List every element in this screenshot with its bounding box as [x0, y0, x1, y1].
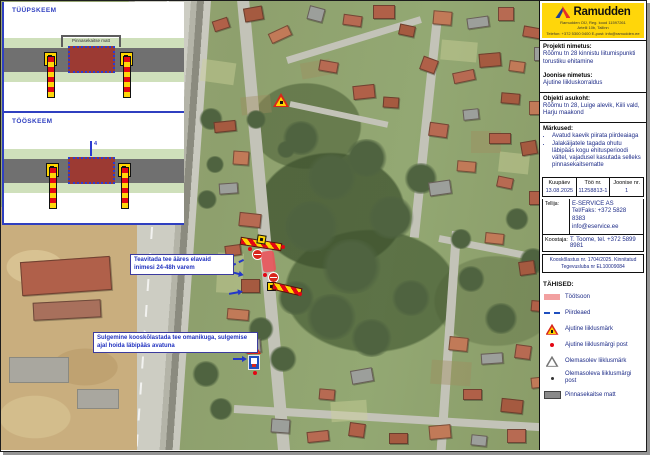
- work-zone-area: [261, 250, 277, 273]
- typical-scheme-panel: TÜÜPSKEEM Pinnasekaitse matt TÖÖSKEEM: [2, 2, 184, 225]
- map-tree: [344, 139, 389, 177]
- construction-slab: [77, 389, 119, 409]
- map-note-inform-residents: Teavitada tee ääres elavaid inimesi 24-4…: [130, 254, 234, 275]
- map-house: [466, 16, 489, 30]
- map-house: [389, 433, 408, 444]
- scheme-title: TÖÖSKEEM: [12, 118, 52, 125]
- map-house: [496, 175, 514, 189]
- map-tree: [390, 280, 432, 316]
- map-field: [200, 59, 237, 86]
- trench-work-zone: [68, 157, 115, 184]
- map-house: [398, 23, 416, 37]
- map-house: [428, 424, 451, 440]
- legend-item-existing-post: Olemasoleva liiklusmärgi post: [543, 371, 643, 385]
- map-house: [241, 279, 260, 293]
- scheme-title: TÜÜPSKEEM: [12, 7, 56, 14]
- dimension-label: 4: [94, 141, 97, 147]
- plan-sheet: Teavitada tee ääres elavaid inimesi 24-4…: [0, 0, 647, 452]
- drawing-label: Joonise nimetus:: [543, 73, 643, 79]
- approval-line: Tegevusluba nr EL10009084: [545, 264, 641, 271]
- excavator-glyph: [280, 101, 283, 104]
- company-logo-box: Ramudden Ramudden OÜ, Reg. kood 11597261…: [542, 3, 644, 38]
- client-line: info@eservice.ee: [572, 224, 641, 232]
- map-house: [428, 122, 449, 139]
- map-tree: [319, 239, 384, 294]
- map-field: [430, 360, 472, 387]
- temporary-sign-post: [248, 247, 252, 251]
- drawing-value: Ajutine liikluskorraldus: [543, 80, 643, 88]
- striped-sign-post: [49, 167, 57, 209]
- title-block: Ramudden Ramudden OÜ, Reg. kood 11597261…: [539, 1, 646, 450]
- project-value: Rõõmu tn 28 kinnistu liitumispunkti toru…: [543, 51, 643, 66]
- client-line: E-SERVICE AS: [572, 201, 641, 209]
- location-label: Objekti asukoht:: [543, 96, 643, 102]
- map-field: [330, 400, 367, 422]
- striped-sign-post: [123, 56, 131, 98]
- project-section: Projekti nimetus: Rõõmu tn 28 kinnistu l…: [540, 40, 646, 70]
- map-house: [462, 108, 479, 121]
- construction-area: [1, 207, 137, 450]
- map-house: [268, 25, 293, 44]
- map-house: [238, 212, 261, 228]
- construction-building: [20, 256, 112, 296]
- note-item: Avatud kaevik piirata piirdeaiaga: [552, 133, 643, 140]
- approval-section: Kooskõlastus nr. 1704/2025. Kinnitatud T…: [542, 254, 644, 274]
- map-tree: [349, 319, 394, 357]
- cross-section: 4: [4, 141, 184, 219]
- mat-swatch: [544, 391, 561, 399]
- map-tree: [504, 208, 530, 230]
- map-house: [212, 17, 231, 32]
- approval-line: Kooskõlastus nr. 1704/2025. Kinnitatud: [545, 257, 641, 264]
- author-value: T. Toome, tel. +372 5899 8981: [570, 237, 641, 249]
- map-house: [348, 422, 366, 438]
- company-address-line: Telefon: +372 5300 0400 E-post: info@ram…: [544, 31, 642, 36]
- meta-col-drawingnr: Joonise nr. 1: [610, 178, 643, 196]
- temp-sign-icon: [546, 324, 559, 335]
- map-house: [522, 25, 540, 39]
- map-house: [271, 418, 291, 433]
- map-note-closure-coordination: Sulgemine kooskõlastada tee omanikuga, s…: [93, 332, 258, 353]
- map-tree: [276, 141, 296, 158]
- scheme-work: TÖÖSKEEM 4: [4, 113, 184, 222]
- map-house: [306, 5, 325, 23]
- legend-item-temp-sign: Ajutine liiklusmärk: [543, 323, 643, 335]
- temporary-roadworks-sign: [273, 93, 289, 107]
- map-house: [489, 133, 511, 144]
- legend-item-temp-post: Ajutine liiklusmärgi post: [543, 339, 643, 351]
- map-house: [342, 14, 362, 28]
- client-section: Tellija: E-SERVICE AS Tel/Faks: +372 582…: [542, 199, 644, 235]
- meta-col-date: Kuupäev 13.08.2025: [543, 178, 577, 196]
- map-house: [319, 388, 336, 400]
- notes-label: Märkused:: [543, 126, 643, 132]
- map-house: [518, 260, 536, 276]
- temporary-sign-post: [298, 292, 302, 296]
- location-section: Objekti asukoht: Rõõmu tn 28, Luige alev…: [540, 92, 646, 122]
- striped-sign-post: [121, 167, 129, 209]
- map-house: [470, 434, 487, 447]
- map-house: [213, 120, 236, 133]
- map-tree: [483, 303, 519, 334]
- dimension-line: [90, 141, 92, 156]
- map-house: [457, 160, 477, 173]
- map-tree: [245, 110, 267, 129]
- information-sign: [248, 355, 260, 370]
- legend-item-fence: Piirdeaed: [543, 307, 643, 319]
- map-house: [500, 398, 523, 414]
- map-tree: [366, 196, 416, 239]
- map-house: [508, 60, 525, 73]
- temporary-sign-post: [263, 273, 267, 277]
- map-house: [481, 352, 504, 365]
- client-label: Tellija:: [543, 199, 570, 234]
- map-house: [452, 69, 476, 84]
- existing-sign-icon: [546, 356, 559, 367]
- author-section: Koostaja: T. Toome, tel. +372 5899 8981: [542, 235, 644, 252]
- map-house: [383, 96, 400, 108]
- meta-col-worknr: Töö nr. 11258813-1: [577, 178, 611, 196]
- author-label: Koostaja:: [545, 237, 568, 249]
- legend-item-mat: Pinnasekaitse matt: [543, 389, 643, 401]
- cross-section: Pinnasekaitse matt: [4, 30, 184, 108]
- construction-slab: [9, 357, 69, 383]
- map-house: [448, 336, 468, 352]
- map-house: [432, 10, 452, 26]
- map-house: [306, 430, 329, 443]
- map-house: [514, 344, 532, 360]
- trench-work-zone: [68, 46, 115, 73]
- map-house: [498, 7, 514, 21]
- temporary-sign-post: [253, 371, 257, 375]
- client-line: Tel/Faks: +372 5828 8383: [572, 208, 641, 224]
- map-tree: [191, 361, 221, 387]
- scheme-typical: TÜÜPSKEEM Pinnasekaitse matt: [4, 2, 184, 111]
- map-tree: [456, 266, 486, 292]
- note-item: Jalakäijatele tagada ohutu läbipääs kogu…: [552, 141, 643, 170]
- map-house: [373, 5, 395, 19]
- legend-item-existing-sign: Olemasolev liiklusmärk: [543, 355, 643, 367]
- map-house: [352, 84, 375, 100]
- legend-title: TÄHISED:: [543, 281, 643, 288]
- map-house: [463, 389, 482, 400]
- location-value: Rõõmu tn 28, Luige alevik, Kiili vald, H…: [543, 103, 643, 118]
- map-house: [520, 140, 538, 157]
- map-house: [243, 5, 264, 22]
- ramudden-logo-icon: [555, 6, 570, 18]
- project-label: Projekti nimetus:: [543, 44, 643, 50]
- existing-post-icon: [551, 377, 554, 380]
- map-house: [507, 429, 526, 443]
- map-tree: [196, 190, 218, 209]
- construction-building: [33, 299, 102, 321]
- legend: TÄHISED: Töötsoon Piirdeaed Ajutine liik…: [540, 275, 646, 401]
- existing-sign-marker: [229, 291, 239, 295]
- map-house: [350, 367, 374, 385]
- temp-post-icon: [550, 343, 554, 347]
- map-tree: [208, 398, 234, 420]
- legend-item-workzone: Töötsoon: [543, 291, 643, 303]
- striped-sign-post: [47, 56, 55, 98]
- map-house: [484, 232, 504, 245]
- map-house: [501, 92, 521, 105]
- map-house: [233, 150, 250, 165]
- brand-name: Ramudden: [573, 6, 630, 18]
- fence-swatch: [544, 312, 560, 314]
- drawing-section: Joonise nimetus: Ajutine liikluskorraldu…: [540, 70, 646, 92]
- map-tree: [205, 156, 225, 173]
- map-field: [440, 39, 478, 62]
- map-house: [227, 308, 250, 321]
- map-tree: [268, 346, 298, 372]
- map-house: [219, 182, 239, 194]
- workzone-swatch: [544, 294, 560, 300]
- meta-table: Kuupäev 13.08.2025 Töö nr. 11258813-1 Jo…: [542, 177, 644, 197]
- protection-mat-label: Pinnasekaitse matt: [63, 38, 119, 43]
- temporary-sign-post: [281, 245, 285, 249]
- map-house: [478, 52, 501, 68]
- notes-section: Märkused: Avatud kaevik piirata piirdeai…: [540, 122, 646, 175]
- temporary-sign-plate: [256, 234, 266, 244]
- existing-sign-marker: [233, 358, 243, 360]
- map-house: [428, 180, 452, 197]
